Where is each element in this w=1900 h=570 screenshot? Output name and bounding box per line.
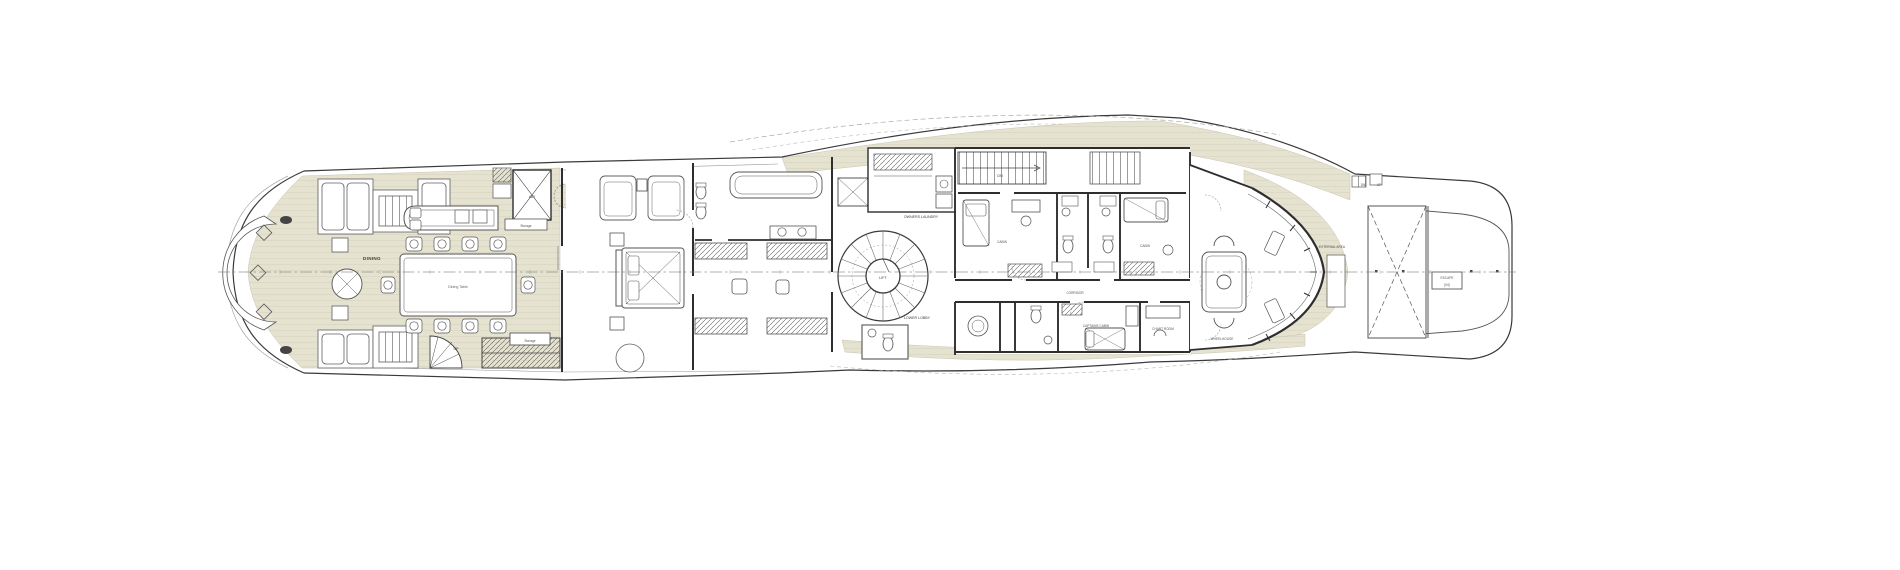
crew-shower-room xyxy=(968,316,988,336)
wheelhouse-label: WHEELHOUSE xyxy=(1211,337,1234,341)
owners-laundry-label: OWNERS LAUNDRY xyxy=(904,215,939,219)
lift-label: LIFT xyxy=(879,276,887,280)
bidet-master xyxy=(696,203,706,219)
deck-locker xyxy=(1327,255,1345,307)
skylight-grid xyxy=(1090,152,1140,184)
owners-laundry xyxy=(868,148,960,212)
vanity-master xyxy=(770,226,816,239)
ottoman-1 xyxy=(732,279,747,294)
ottoman-2 xyxy=(776,280,789,294)
yacht-deck-plan-page: DINING Dining Table AIR Storage UP Stora… xyxy=(0,0,1900,570)
dumbwaiter-box-2 xyxy=(493,184,511,198)
dryer xyxy=(936,194,952,208)
foredeck xyxy=(1352,174,1509,338)
up-bow-label: UP xyxy=(1377,183,1381,187)
dumbwaiter-box-1 xyxy=(493,168,511,182)
master-bathroom xyxy=(695,172,868,240)
dn-bow-label: DN xyxy=(1361,183,1366,187)
external-area-label: EXTERNAL AREA xyxy=(1319,245,1346,249)
dining-area-label: DINING xyxy=(363,256,381,261)
helm-wheel xyxy=(1217,275,1231,289)
up-aft-label: UP xyxy=(454,347,460,351)
lower-lobby-label: LOWER LOBBY xyxy=(904,316,931,320)
storage-aft-label: Storage xyxy=(524,339,535,343)
chart-desk xyxy=(1146,306,1180,318)
master-stateroom xyxy=(558,163,693,372)
day-head xyxy=(862,325,908,359)
cabin-stbd-label: CABIN xyxy=(1140,244,1150,248)
corridor-label: CORRIDOR xyxy=(1066,291,1084,295)
chart-room-label: CHART ROOM xyxy=(1152,327,1174,331)
escape-label-2: [04] xyxy=(1444,283,1449,287)
deck-cleat-bottom xyxy=(280,346,292,354)
captains-cabin-label: CAPTAINS CABIN xyxy=(1083,324,1110,328)
storage-mid-label: Storage xyxy=(520,224,531,228)
shaft-box xyxy=(838,178,868,206)
external-deck xyxy=(1327,255,1345,307)
bar-counter xyxy=(404,206,498,230)
yacht-deck-plan: DINING Dining Table AIR Storage UP Stora… xyxy=(0,0,1900,570)
air-label: AIR xyxy=(529,195,535,199)
captain-desk xyxy=(1126,306,1138,326)
captain-wardrobe xyxy=(1062,304,1082,315)
sink-dayhead xyxy=(868,329,876,337)
washer xyxy=(936,176,952,192)
dn-fwd-label: DN xyxy=(997,174,1003,178)
escape-label-1: ESCAPE xyxy=(1441,276,1454,280)
toilet-dayhead xyxy=(883,337,893,351)
deck-cleat-top xyxy=(280,216,292,224)
crew-stairs-down xyxy=(958,152,1046,184)
round-seat xyxy=(616,344,644,372)
toilet-master xyxy=(696,183,706,199)
dining-table-label: Dining Table xyxy=(448,285,468,289)
cabin-port-label: CABIN xyxy=(997,240,1007,244)
crew-area: DN CABIN CABIN CORRIDOR xyxy=(955,148,1190,355)
